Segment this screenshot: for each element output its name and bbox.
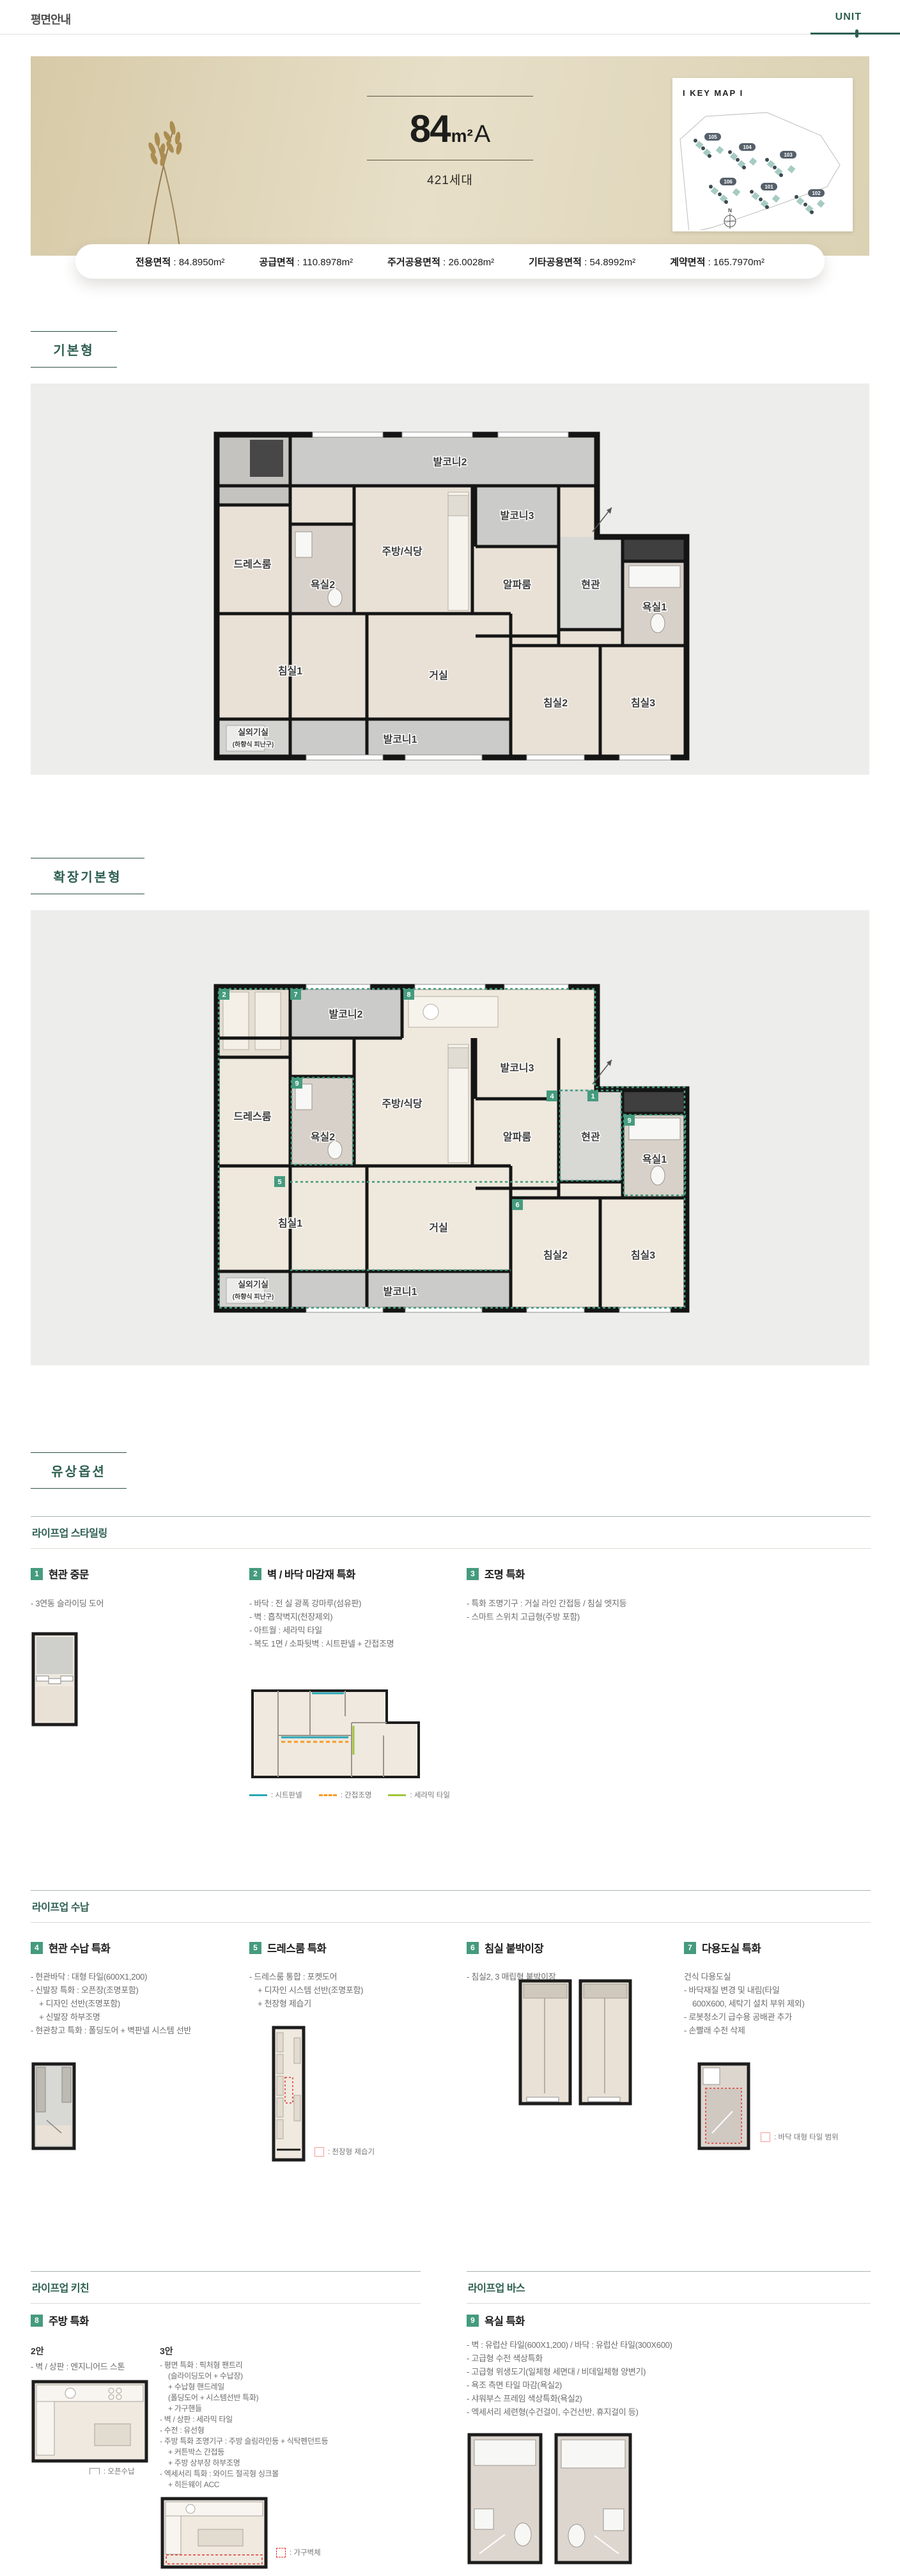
legend-indirect-light-swatch: [319, 1794, 337, 1796]
item2-title: 벽 / 바닥 마감재 특화: [267, 1566, 355, 1581]
page-header: 평면안내 UNIT: [0, 0, 900, 35]
item4-head: 4 현관 수납 특화: [31, 1940, 110, 1955]
item7-legend: : 바닥 대형 타일 범위: [761, 2132, 839, 2142]
svg-text:욕실2: 욕실2: [311, 1131, 335, 1143]
building-cluster-103: 103: [765, 151, 796, 177]
svg-text:실외기실: 실외기실: [238, 1280, 268, 1289]
svg-text:욕실1: 욕실1: [642, 1154, 667, 1165]
item3-title: 조명 특화: [485, 1566, 525, 1581]
item2-head: 2 벽 / 바닥 마감재 특화: [249, 1566, 355, 1581]
svg-text:발코니1: 발코니1: [383, 1286, 417, 1298]
item1-entrance-door-plan: [31, 1631, 79, 1727]
svg-text:5: 5: [277, 1179, 281, 1186]
page-title: 평면안내: [31, 11, 70, 27]
floor-plan-page: 평면안내 UNIT 84: [0, 0, 900, 2576]
item7-title: 다용도실 특화: [702, 1940, 761, 1955]
hero-size-unit: m²: [451, 126, 473, 146]
svg-text:7: 7: [293, 991, 297, 999]
legend-dehumidifier-swatch: [314, 2147, 324, 2157]
key-map-site-plan: 105 104 103: [672, 102, 853, 230]
item8-head: 8 주방 특화: [31, 2313, 89, 2328]
svg-text:4: 4: [550, 1093, 554, 1101]
item2-bullets: - 바닥 : 전 실 광폭 강마루(섬유판) - 벽 : 흡착벽지(천장제외) …: [249, 1597, 394, 1650]
area-info-bar: 전용면적 : 84.8950m² 공급면적 : 110.8978m² 주거공용면…: [75, 244, 825, 279]
svg-text:104: 104: [743, 144, 752, 150]
svg-text:주방/식당: 주방/식당: [382, 546, 423, 557]
item1-head: 1 현관 중문: [31, 1566, 89, 1581]
hero-households: 421세대: [367, 171, 533, 188]
svg-text:1: 1: [591, 1093, 594, 1101]
item5-dressroom-plan: [271, 2025, 306, 2162]
svg-text:106: 106: [724, 179, 733, 185]
svg-text:거실: 거실: [429, 670, 447, 681]
svg-text:침실3: 침실3: [631, 1249, 655, 1261]
svg-text:거실: 거실: [429, 1222, 447, 1234]
svg-text:102: 102: [812, 190, 821, 196]
item8-variant2-bullets: - 벽 / 상판 : 엔지니어드 스톤: [31, 2360, 125, 2373]
group-header-styling: 라이프업 스타일링: [31, 1516, 871, 1549]
svg-text:침실2: 침실2: [543, 1249, 568, 1261]
tab-active-dot: [855, 29, 858, 38]
svg-text:(하향식 피난구): (하향식 피난구): [233, 740, 274, 749]
item8-variant2-kitchen-plan: [31, 2379, 149, 2463]
svg-text:침실2: 침실2: [543, 697, 568, 709]
svg-text:9: 9: [627, 1117, 631, 1125]
section-label-extended: 확장기본형: [31, 858, 144, 894]
svg-text:발코니3: 발코니3: [500, 510, 534, 522]
hero-unit-name: 84 m² A: [367, 107, 533, 151]
hero-type: A: [474, 121, 490, 148]
item6-wardrobe-plan: [518, 1978, 633, 2106]
svg-text:101: 101: [764, 184, 773, 190]
legend-open-storage-swatch: [89, 2468, 100, 2474]
item5-title: 드레스룸 특화: [267, 1940, 326, 1955]
key-map-title: I KEY MAP I: [683, 88, 743, 98]
item1-badge: 1: [31, 1568, 43, 1580]
section-label-paid-options: 유상옵션: [31, 1452, 127, 1489]
building-cluster-105: 105: [694, 133, 724, 158]
svg-text:드레스룸: 드레스룸: [234, 1111, 272, 1122]
svg-text:욕실2: 욕실2: [311, 579, 335, 591]
building-cluster-101: 101: [750, 183, 780, 209]
item5-bullets: - 드레스룸 통합 : 포켓도어 + 디자인 시스템 선반(조명포함) + 천장…: [249, 1970, 363, 2010]
hero-unit-block: 84 m² A 421세대: [367, 96, 533, 188]
item7-badge: 7: [684, 1942, 696, 1954]
section-label-basic: 기본형: [31, 331, 117, 368]
svg-text:드레스룸: 드레스룸: [234, 559, 272, 570]
svg-text:2: 2: [222, 991, 226, 999]
svg-text:욕실1: 욕실1: [642, 601, 667, 613]
svg-text:발코니3: 발코니3: [500, 1062, 534, 1074]
svg-text:현관: 현관: [581, 1131, 600, 1143]
item9-head: 9 욕실 특화: [467, 2313, 525, 2328]
svg-text:침실3: 침실3: [631, 697, 655, 709]
group-header-bath: 라이프업 바스: [467, 2271, 871, 2304]
item8-title: 주방 특화: [49, 2313, 89, 2328]
item1-bullets: - 3연동 슬라이딩 도어: [31, 1597, 104, 1610]
group-header-storage: 라이프업 수납: [31, 1890, 871, 1923]
item9-bullets: - 벽 : 유럽산 타일(600X1,200) / 바닥 : 유럽산 타일(30…: [467, 2338, 672, 2419]
extended-floor-plan: 2 7 8 9 5 4 1 9 6 발코니2 드레스룸 욕실2 주방/식당 발코…: [210, 949, 690, 1316]
item4-badge: 4: [31, 1942, 43, 1954]
item7-head: 7 다용도실 특화: [684, 1940, 761, 1955]
item9-bathroom-plans: [467, 2432, 633, 2566]
svg-text:침실1: 침실1: [278, 665, 302, 677]
svg-text:9: 9: [295, 1080, 299, 1088]
svg-text:현관: 현관: [581, 578, 600, 591]
hero-rule-top: [367, 96, 533, 97]
item2-finish-plan: [249, 1678, 422, 1780]
extended-plan-panel: 2 7 8 9 5 4 1 9 6 발코니2 드레스룸 욕실2 주방/식당 발코…: [31, 910, 869, 1365]
basic-plan-panel: 발코니2 드레스룸 욕실2 주방/식당 발코니3 알파룸 현관 욕실1 침실1 …: [31, 384, 869, 775]
svg-text:침실1: 침실1: [278, 1217, 302, 1229]
svg-text:105: 105: [708, 134, 717, 140]
item6-badge: 6: [467, 1942, 479, 1954]
item8-variant3-bullets: - 평면 특화 : 픽처형 팬트리 (슬라이딩도어 + 수납장) + 수납형 핸…: [160, 2360, 328, 2490]
item2-badge: 2: [249, 1568, 261, 1580]
svg-text:(하향식 피난구): (하향식 피난구): [233, 1292, 274, 1301]
item4-entrance-storage-plan: [31, 2061, 77, 2151]
area-info-other-common: 기타공용면적 : 54.8992m²: [529, 255, 635, 268]
item9-title: 욕실 특화: [485, 2313, 525, 2328]
building-cluster-102: 102: [795, 189, 825, 214]
hero-size: 84: [410, 107, 450, 151]
area-info-contract: 계약면적 : 165.7970m²: [670, 255, 764, 268]
building-cluster-104: 104: [728, 143, 757, 169]
item8-variant3-name: 3안: [160, 2345, 173, 2357]
legend-large-tile-swatch: [761, 2132, 770, 2142]
hero-banner: 84 m² A 421세대 I KEY MAP I 105: [31, 56, 869, 256]
svg-text:103: 103: [784, 152, 793, 158]
key-map: I KEY MAP I 105: [672, 78, 853, 231]
svg-text:N: N: [728, 208, 732, 213]
item8-variant2-name: 2안: [31, 2345, 44, 2357]
svg-text:발코니1: 발코니1: [383, 734, 417, 745]
item2-legend: : 시트판넬 : 간접조명 : 세라믹 타일: [249, 1790, 450, 1800]
item8-badge: 8: [31, 2315, 43, 2327]
area-info-residential-common: 주거공용면적 : 26.0028m²: [387, 255, 494, 268]
item3-badge: 3: [467, 1568, 479, 1580]
item9-badge: 9: [467, 2315, 479, 2327]
wheat-decoration-icon: [82, 82, 350, 256]
legend-furniture-wall-swatch: [276, 2548, 286, 2557]
item1-title: 현관 중문: [49, 1566, 89, 1581]
hero-rule-bottom: [367, 160, 533, 160]
area-info-exclusive: 전용면적 : 84.8950m²: [136, 255, 224, 268]
item3-bullets: - 특화 조명기구 : 거실 라인 간접등 / 침실 엣지등 - 스마트 스위치…: [467, 1597, 626, 1624]
item6-head: 6 침실 붙박이장: [467, 1940, 543, 1955]
item7-bullets: 건식 다용도실 - 바닥재질 변경 및 내림(타일 600X600, 세탁기 설…: [684, 1970, 804, 2037]
item7-utility-room-plan: [697, 2061, 751, 2151]
item8-variant3-kitchen-plan: [160, 2496, 268, 2570]
legend-sheet-panel-swatch: [249, 1794, 267, 1796]
item6-title: 침실 붙박이장: [485, 1940, 543, 1955]
svg-text:발코니2: 발코니2: [329, 1009, 362, 1020]
item5-badge: 5: [249, 1942, 261, 1954]
svg-text:주방/식당: 주방/식당: [382, 1098, 423, 1110]
svg-text:알파룸: 알파룸: [503, 579, 531, 591]
svg-text:발코니2: 발코니2: [433, 456, 467, 468]
svg-text:6: 6: [515, 1202, 519, 1209]
basic-floor-plan: 발코니2 드레스룸 욕실2 주방/식당 발코니3 알파룸 현관 욕실1 침실1 …: [210, 396, 690, 764]
item8-variant3-legend: : 가구벽체: [276, 2547, 321, 2557]
svg-text:알파룸: 알파룸: [503, 1131, 531, 1143]
legend-ceramic-tile-swatch: [388, 1794, 406, 1796]
area-info-supply: 공급면적 : 110.8978m²: [259, 255, 353, 268]
item5-legend: : 천장형 제습기: [314, 2146, 375, 2157]
tab-unit[interactable]: UNIT: [835, 12, 862, 23]
item8-variant2-legend: : 오픈수납: [89, 2466, 135, 2476]
item4-title: 현관 수납 특화: [49, 1940, 110, 1955]
svg-text:실외기실: 실외기실: [238, 727, 268, 737]
item5-head: 5 드레스룸 특화: [249, 1940, 326, 1955]
item4-bullets: - 현관바닥 : 대형 타일(600X1,200) - 신발장 특화 : 오픈장…: [31, 1970, 191, 2037]
compass-icon: N: [724, 208, 736, 229]
building-cluster-106: 106: [709, 178, 740, 204]
item3-head: 3 조명 특화: [467, 1566, 525, 1581]
svg-text:8: 8: [407, 991, 410, 999]
group-header-kitchen: 라이프업 키친: [31, 2271, 421, 2304]
